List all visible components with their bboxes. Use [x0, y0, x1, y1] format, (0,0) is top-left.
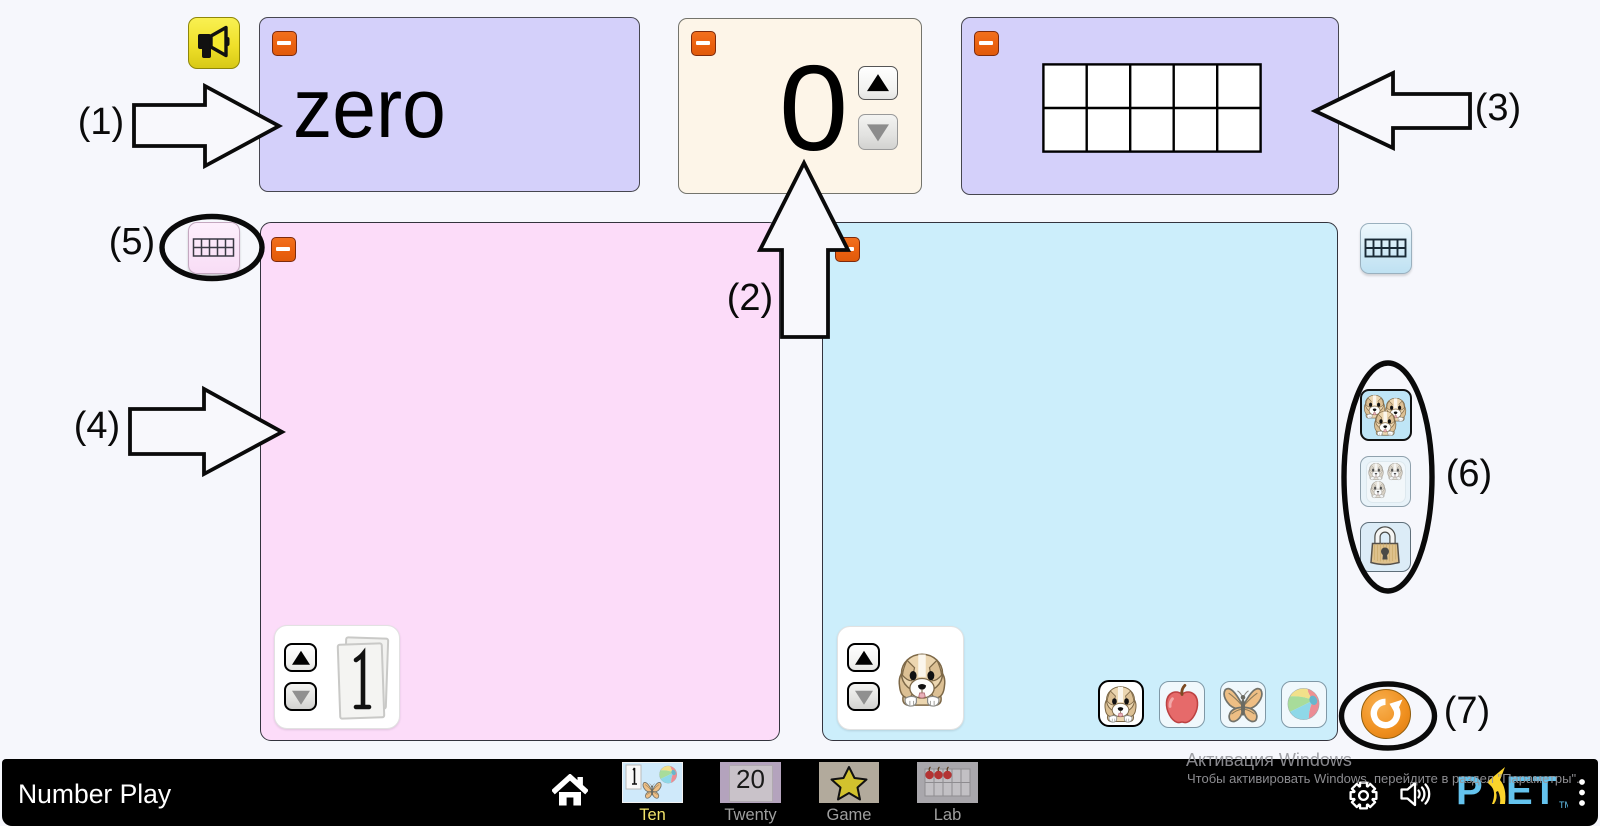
svg-text:TM: TM: [1559, 800, 1568, 810]
svg-text:(5): (5): [109, 221, 155, 263]
svg-text:(6): (6): [1446, 453, 1492, 495]
svg-text:(3): (3): [1475, 87, 1521, 129]
svg-text:(1): (1): [78, 101, 124, 143]
svg-text:(7): (7): [1444, 690, 1490, 732]
svg-text:(4): (4): [74, 405, 120, 447]
